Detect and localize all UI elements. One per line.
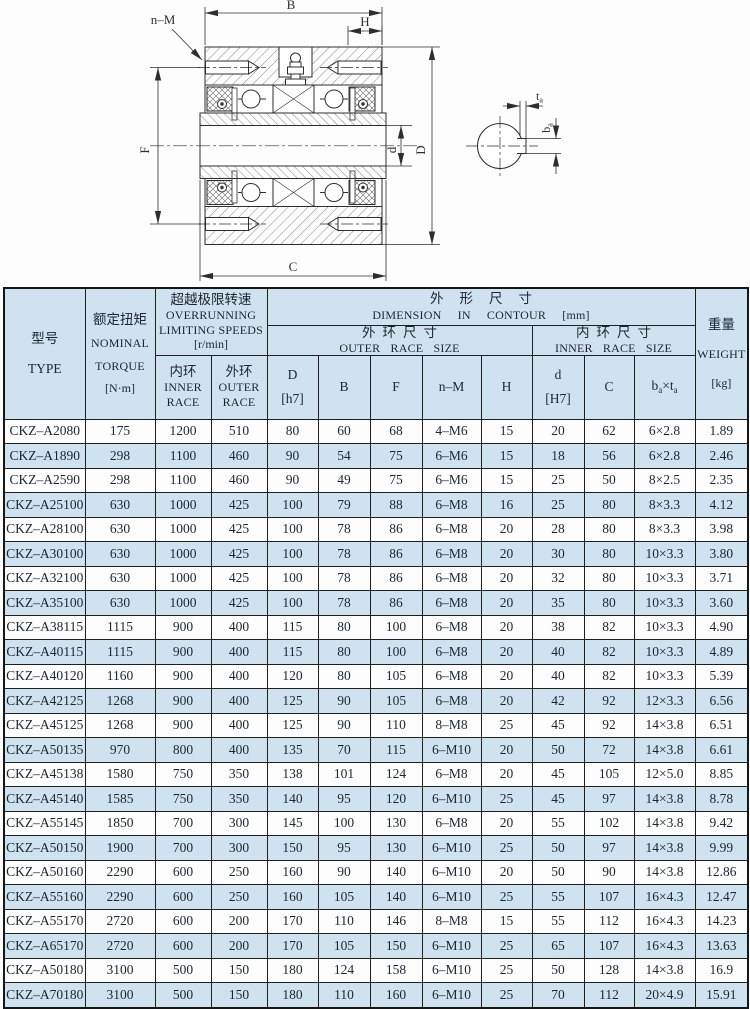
header-col-H: H <box>481 355 532 419</box>
cell-torque: 1580 <box>85 762 155 787</box>
cell-type: CKZ–A40120 <box>4 664 85 689</box>
cell-outer-speed: 400 <box>211 738 267 763</box>
cell-torque: 298 <box>85 444 155 469</box>
cell-type: CKZ–A35100 <box>4 591 85 616</box>
cell-inner-speed: 500 <box>155 983 211 1008</box>
cell-F: 86 <box>370 517 422 542</box>
cell-B: 60 <box>318 419 370 444</box>
cell-nM: 6–M8 <box>422 566 481 591</box>
spec-table: 型号 TYPE 额定扭矩 NOMINAL TORQUE [N·m] 超越极限转速… <box>3 287 749 1009</box>
cell-d: 65 <box>532 934 584 959</box>
table-row: CKZ–A25100630100042510079886–M81625808×3… <box>4 493 748 518</box>
cell-torque: 2290 <box>85 885 155 910</box>
cell-C: 112 <box>584 983 634 1008</box>
cell-outer-speed: 300 <box>211 811 267 836</box>
cell-C: 97 <box>584 787 634 812</box>
cell-nM: 6–M8 <box>422 542 481 567</box>
cell-B: 78 <box>318 591 370 616</box>
cell-d: 42 <box>532 689 584 714</box>
cell-weight: 3.71 <box>695 566 748 591</box>
cell-torque: 1115 <box>85 615 155 640</box>
cell-bt: 10×3.3 <box>634 591 695 616</box>
table-row: CKZ–A501602290600250160901406–M102050901… <box>4 860 748 885</box>
header-nominal-torque: 额定扭矩 NOMINAL TORQUE [N·m] <box>85 288 155 419</box>
header-inner-race-speed: 内环 INNER RACE <box>155 355 211 419</box>
cell-outer-speed: 460 <box>211 468 267 493</box>
cell-nM: 6–M8 <box>422 811 481 836</box>
header-outer-size-zh: 外环尺寸 <box>362 326 444 340</box>
cell-d: 25 <box>532 493 584 518</box>
cell-bt: 6×2.8 <box>634 444 695 469</box>
cell-B: 90 <box>318 713 370 738</box>
header-torque-en1: NOMINAL <box>91 337 149 350</box>
dim-label-C: C <box>289 259 298 274</box>
cell-inner-speed: 900 <box>155 640 211 665</box>
cell-weight: 5.39 <box>695 664 748 689</box>
cell-C: 92 <box>584 713 634 738</box>
header-col-C: C <box>584 355 634 419</box>
cell-H: 20 <box>481 640 532 665</box>
cell-F: 130 <box>370 836 422 861</box>
cell-weight: 1.89 <box>695 419 748 444</box>
header-dimension-group: 外形尺寸 DIMENSION IN CONTOUR [mm] <box>267 288 695 325</box>
table-row: CKZ–A421251268900400125901056–M820429212… <box>4 689 748 714</box>
cell-H: 20 <box>481 591 532 616</box>
cell-B: 79 <box>318 493 370 518</box>
cell-torque: 970 <box>85 738 155 763</box>
table-row: CKZ–A381151115900400115801006–M820388210… <box>4 615 748 640</box>
cell-d: 28 <box>532 517 584 542</box>
cell-weight: 9.42 <box>695 811 748 836</box>
dim-label-B: B <box>287 0 296 12</box>
cell-inner-speed: 900 <box>155 615 211 640</box>
dim-label-d: d <box>384 146 399 153</box>
cell-d: 50 <box>532 958 584 983</box>
cell-inner-speed: 700 <box>155 811 211 836</box>
cell-H: 15 <box>481 419 532 444</box>
header-col-B: B <box>318 355 370 419</box>
cell-inner-speed: 700 <box>155 836 211 861</box>
cell-D: 150 <box>267 836 318 861</box>
cell-C: 56 <box>584 444 634 469</box>
cell-D: 120 <box>267 664 318 689</box>
cell-type: CKZ–A32100 <box>4 566 85 591</box>
cell-outer-speed: 250 <box>211 885 267 910</box>
cell-B: 105 <box>318 885 370 910</box>
cell-inner-speed: 500 <box>155 958 211 983</box>
cell-F: 88 <box>370 493 422 518</box>
cell-F: 158 <box>370 958 422 983</box>
table-row: CKZ–A35100630100042510078866–M820358010×… <box>4 591 748 616</box>
cell-H: 20 <box>481 738 532 763</box>
cell-inner-speed: 1000 <box>155 493 211 518</box>
cell-bt: 14×3.8 <box>634 713 695 738</box>
cell-B: 78 <box>318 517 370 542</box>
cell-inner-speed: 750 <box>155 787 211 812</box>
header-torque-en2: TORQUE <box>95 360 145 373</box>
cell-torque: 630 <box>85 542 155 567</box>
cell-nM: 6–M8 <box>422 517 481 542</box>
cell-bt: 14×3.8 <box>634 836 695 861</box>
cell-bt: 10×3.3 <box>634 566 695 591</box>
cell-H: 20 <box>481 615 532 640</box>
cell-H: 15 <box>481 444 532 469</box>
cell-nM: 6–M10 <box>422 885 481 910</box>
header-col-d: d [H7] <box>532 355 584 419</box>
cell-bt: 14×3.8 <box>634 958 695 983</box>
cell-B: 95 <box>318 787 370 812</box>
cell-D: 180 <box>267 958 318 983</box>
cell-B: 80 <box>318 615 370 640</box>
cell-B: 70 <box>318 738 370 763</box>
cell-D: 115 <box>267 615 318 640</box>
cell-torque: 2720 <box>85 934 155 959</box>
cell-outer-speed: 400 <box>211 713 267 738</box>
cell-B: 78 <box>318 566 370 591</box>
cell-weight: 14.23 <box>695 909 748 934</box>
cell-nM: 6–M6 <box>422 444 481 469</box>
cell-type: CKZ–A2080 <box>4 419 85 444</box>
cell-F: 100 <box>370 615 422 640</box>
cell-d: 40 <box>532 640 584 665</box>
cell-C: 80 <box>584 493 634 518</box>
cell-B: 90 <box>318 689 370 714</box>
table-row: CKZ–A5514518507003001451001306–M82055102… <box>4 811 748 836</box>
cell-D: 100 <box>267 591 318 616</box>
cell-F: 68 <box>370 419 422 444</box>
cell-outer-speed: 150 <box>211 983 267 1008</box>
table-row: CKZ–A32100630100042510078866–M820328010×… <box>4 566 748 591</box>
cell-torque: 1268 <box>85 689 155 714</box>
cell-F: 130 <box>370 811 422 836</box>
cell-nM: 6–M10 <box>422 958 481 983</box>
cell-outer-speed: 150 <box>211 958 267 983</box>
cell-D: 135 <box>267 738 318 763</box>
dim-label-ba: ba <box>539 123 555 133</box>
header-speeds-en2: LIMITING SPEEDS <box>159 324 263 337</box>
cell-bt: 10×3.3 <box>634 664 695 689</box>
cell-type: CKZ–A50160 <box>4 860 85 885</box>
cell-D: 90 <box>267 444 318 469</box>
cell-outer-speed: 425 <box>211 517 267 542</box>
cell-bt: 14×3.8 <box>634 811 695 836</box>
cell-type: CKZ–A28100 <box>4 517 85 542</box>
header-weight-zh: 重量 <box>708 318 735 332</box>
cell-nM: 6–M10 <box>422 738 481 763</box>
cell-C: 50 <box>584 468 634 493</box>
cell-B: 49 <box>318 468 370 493</box>
cell-d: 50 <box>532 738 584 763</box>
cell-d: 55 <box>532 811 584 836</box>
cell-C: 105 <box>584 762 634 787</box>
cell-inner-speed: 1200 <box>155 419 211 444</box>
cell-torque: 630 <box>85 493 155 518</box>
cell-weight: 9.99 <box>695 836 748 861</box>
cell-torque: 1900 <box>85 836 155 861</box>
table-row: CKZ–A401151115900400115801006–M820408210… <box>4 640 748 665</box>
header-dim-zh: 外形尺寸 <box>430 292 548 306</box>
cell-nM: 6–M10 <box>422 983 481 1008</box>
cell-bt: 14×3.8 <box>634 860 695 885</box>
cell-D: 180 <box>267 983 318 1008</box>
cell-inner-speed: 900 <box>155 689 211 714</box>
cell-d: 20 <box>532 419 584 444</box>
cell-B: 90 <box>318 860 370 885</box>
cell-nM: 6–M8 <box>422 493 481 518</box>
cell-d: 45 <box>532 713 584 738</box>
cell-weight: 16.9 <box>695 958 748 983</box>
cell-nM: 6–M8 <box>422 762 481 787</box>
cell-D: 160 <box>267 885 318 910</box>
cell-weight: 15.91 <box>695 983 748 1008</box>
cell-bt: 8×2.5 <box>634 468 695 493</box>
cell-D: 100 <box>267 542 318 567</box>
cell-nM: 6–M10 <box>422 836 481 861</box>
bearing-cross-section-drawing: B H n–M F d D C ta ba <box>0 0 750 287</box>
table-row: CKZ–A401201160900400120801056–M820408210… <box>4 664 748 689</box>
cell-B: 95 <box>318 836 370 861</box>
cell-H: 20 <box>481 762 532 787</box>
cell-bt: 10×3.3 <box>634 542 695 567</box>
cell-D: 170 <box>267 934 318 959</box>
cell-F: 86 <box>370 591 422 616</box>
cell-D: 80 <box>267 419 318 444</box>
cell-B: 110 <box>318 983 370 1008</box>
cell-outer-speed: 250 <box>211 860 267 885</box>
cell-torque: 630 <box>85 517 155 542</box>
cell-type: CKZ–A50150 <box>4 836 85 861</box>
cell-C: 128 <box>584 958 634 983</box>
cell-D: 138 <box>267 762 318 787</box>
cell-inner-speed: 1000 <box>155 591 211 616</box>
cell-inner-speed: 900 <box>155 664 211 689</box>
cell-type: CKZ–A30100 <box>4 542 85 567</box>
cell-C: 80 <box>584 566 634 591</box>
cell-d: 35 <box>532 591 584 616</box>
dim-label-D: D <box>413 145 428 154</box>
cell-D: 100 <box>267 517 318 542</box>
cell-nM: 6–M8 <box>422 664 481 689</box>
cell-inner-speed: 600 <box>155 909 211 934</box>
cell-C: 82 <box>584 640 634 665</box>
header-inner-race-size: 内环尺寸 INNER RACE SIZE <box>532 325 695 355</box>
table-row: CKZ–A5018031005001501801241586–M10255012… <box>4 958 748 983</box>
cell-C: 62 <box>584 419 634 444</box>
cell-bt: 16×4.3 <box>634 909 695 934</box>
cell-d: 18 <box>532 444 584 469</box>
cell-nM: 6–M10 <box>422 787 481 812</box>
cell-bt: 8×3.3 <box>634 493 695 518</box>
cell-F: 120 <box>370 787 422 812</box>
cell-torque: 1850 <box>85 811 155 836</box>
cell-weight: 3.98 <box>695 517 748 542</box>
header-outer-size-en: OUTER RACE SIZE <box>339 342 459 355</box>
cell-torque: 630 <box>85 566 155 591</box>
cell-F: 75 <box>370 468 422 493</box>
cell-H: 25 <box>481 836 532 861</box>
header-type: 型号 TYPE <box>4 288 85 419</box>
cell-C: 92 <box>584 689 634 714</box>
cell-d: 70 <box>532 983 584 1008</box>
header-outer-race-speed: 外环 OUTER RACE <box>211 355 267 419</box>
table-row: CKZ–A6517027206002001701051506–M10256510… <box>4 934 748 959</box>
cell-D: 125 <box>267 713 318 738</box>
table-row: CKZ–A30100630100042510078866–M820308010×… <box>4 542 748 567</box>
cell-torque: 1160 <box>85 664 155 689</box>
cell-B: 100 <box>318 811 370 836</box>
cell-outer-speed: 400 <box>211 664 267 689</box>
spec-table-body: CKZ–A208017512005108060684–M61520626×2.8… <box>4 419 748 1008</box>
header-outer-race-size: 外环尺寸 OUTER RACE SIZE <box>267 325 532 355</box>
header-type-zh: 型号 <box>31 332 58 346</box>
dim-label-F: F <box>137 146 152 153</box>
header-col-nM: n–M <box>422 355 481 419</box>
cell-B: 54 <box>318 444 370 469</box>
cell-inner-speed: 1000 <box>155 542 211 567</box>
cell-D: 100 <box>267 493 318 518</box>
cell-type: CKZ–A50180 <box>4 958 85 983</box>
cell-type: CKZ–A70180 <box>4 983 85 1008</box>
cell-torque: 1115 <box>85 640 155 665</box>
cell-C: 97 <box>584 836 634 861</box>
cell-H: 25 <box>481 787 532 812</box>
cell-F: 160 <box>370 983 422 1008</box>
cell-H: 25 <box>481 713 532 738</box>
cell-bt: 8×3.3 <box>634 517 695 542</box>
cell-type: CKZ–A50135 <box>4 738 85 763</box>
cell-weight: 4.89 <box>695 640 748 665</box>
cell-d: 25 <box>532 468 584 493</box>
cell-F: 146 <box>370 909 422 934</box>
cell-H: 20 <box>481 517 532 542</box>
cell-d: 50 <box>532 860 584 885</box>
cell-d: 55 <box>532 909 584 934</box>
cell-B: 78 <box>318 542 370 567</box>
cell-type: CKZ–A45138 <box>4 762 85 787</box>
table-row: CKZ–A7018031005001501801101606–M10257011… <box>4 983 748 1008</box>
cell-outer-speed: 425 <box>211 493 267 518</box>
header-weight-unit: [kg] <box>711 377 731 390</box>
cell-F: 140 <box>370 860 422 885</box>
cell-C: 72 <box>584 738 634 763</box>
header-weight-en: WEIGHT <box>697 348 746 361</box>
cell-C: 82 <box>584 615 634 640</box>
cell-inner-speed: 1000 <box>155 566 211 591</box>
cell-F: 105 <box>370 689 422 714</box>
cell-nM: 8–M8 <box>422 909 481 934</box>
drawing-panel: B H n–M F d D C ta ba <box>0 0 750 287</box>
header-speeds-zh: 超越极限转速 <box>171 293 252 307</box>
cell-weight: 6.56 <box>695 689 748 714</box>
cell-H: 15 <box>481 468 532 493</box>
cell-nM: 4–M6 <box>422 419 481 444</box>
cell-F: 110 <box>370 713 422 738</box>
cell-outer-speed: 350 <box>211 762 267 787</box>
cell-C: 107 <box>584 885 634 910</box>
cell-d: 30 <box>532 542 584 567</box>
cell-weight: 12.86 <box>695 860 748 885</box>
cell-outer-speed: 460 <box>211 444 267 469</box>
cell-d: 45 <box>532 762 584 787</box>
dim-label-ta: ta <box>536 89 543 105</box>
cell-type: CKZ–A40115 <box>4 640 85 665</box>
cell-B: 80 <box>318 664 370 689</box>
cell-d: 32 <box>532 566 584 591</box>
main-section-view <box>150 47 420 245</box>
cell-bt: 16×4.3 <box>634 934 695 959</box>
cell-F: 75 <box>370 444 422 469</box>
header-col-D: D [h7] <box>267 355 318 419</box>
cell-outer-speed: 425 <box>211 566 267 591</box>
cell-C: 80 <box>584 591 634 616</box>
cell-d: 45 <box>532 787 584 812</box>
cell-inner-speed: 1100 <box>155 444 211 469</box>
cell-H: 20 <box>481 689 532 714</box>
cell-type: CKZ–A45140 <box>4 787 85 812</box>
cell-weight: 3.60 <box>695 591 748 616</box>
table-row: CKZ–A189029811004609054756–M61518566×2.8… <box>4 444 748 469</box>
dim-label-H: H <box>360 14 369 29</box>
cell-weight: 6.61 <box>695 738 748 763</box>
cell-bt: 10×3.3 <box>634 640 695 665</box>
cell-D: 140 <box>267 787 318 812</box>
cell-C: 102 <box>584 811 634 836</box>
table-row: CKZ–A259029811004609049756–M61525508×2.5… <box>4 468 748 493</box>
cell-F: 150 <box>370 934 422 959</box>
cell-outer-speed: 400 <box>211 615 267 640</box>
cell-torque: 3100 <box>85 958 155 983</box>
cell-B: 110 <box>318 909 370 934</box>
cell-inner-speed: 750 <box>155 762 211 787</box>
table-row: CKZ–A4513815807503501381011246–M82045105… <box>4 762 748 787</box>
cell-nM: 6–M10 <box>422 934 481 959</box>
cell-outer-speed: 400 <box>211 689 267 714</box>
cell-weight: 2.35 <box>695 468 748 493</box>
dim-label-nM: n–M <box>151 12 176 27</box>
cell-bt: 12×3.3 <box>634 689 695 714</box>
cell-outer-speed: 300 <box>211 836 267 861</box>
cell-H: 20 <box>481 811 532 836</box>
cell-type: CKZ–A55145 <box>4 811 85 836</box>
cell-outer-speed: 425 <box>211 591 267 616</box>
cell-D: 90 <box>267 468 318 493</box>
cell-type: CKZ–A1890 <box>4 444 85 469</box>
cell-D: 115 <box>267 640 318 665</box>
cell-nM: 6–M6 <box>422 468 481 493</box>
cell-type: CKZ–A38115 <box>4 615 85 640</box>
table-row: CKZ–A451251268900400125901108–M825459214… <box>4 713 748 738</box>
cell-torque: 175 <box>85 419 155 444</box>
cell-B: 124 <box>318 958 370 983</box>
header-col-bt: ba×ta <box>634 355 695 419</box>
cell-torque: 2720 <box>85 909 155 934</box>
cell-weight: 8.78 <box>695 787 748 812</box>
cell-D: 170 <box>267 909 318 934</box>
cell-d: 40 <box>532 664 584 689</box>
cell-H: 20 <box>481 566 532 591</box>
cell-F: 115 <box>370 738 422 763</box>
cell-type: CKZ–A65170 <box>4 934 85 959</box>
cell-nM: 6–M8 <box>422 640 481 665</box>
cell-type: CKZ–A55160 <box>4 885 85 910</box>
header-overrunning-speeds: 超越极限转速 OVERRUNNING LIMITING SPEEDS [r/mi… <box>155 288 267 355</box>
cell-H: 25 <box>481 983 532 1008</box>
header-inner-size-zh: 内环尺寸 <box>576 326 658 340</box>
cell-bt: 14×3.8 <box>634 738 695 763</box>
cell-bt: 20×4.9 <box>634 983 695 1008</box>
table-row: CKZ–A208017512005108060684–M61520626×2.8… <box>4 419 748 444</box>
cell-torque: 2290 <box>85 860 155 885</box>
